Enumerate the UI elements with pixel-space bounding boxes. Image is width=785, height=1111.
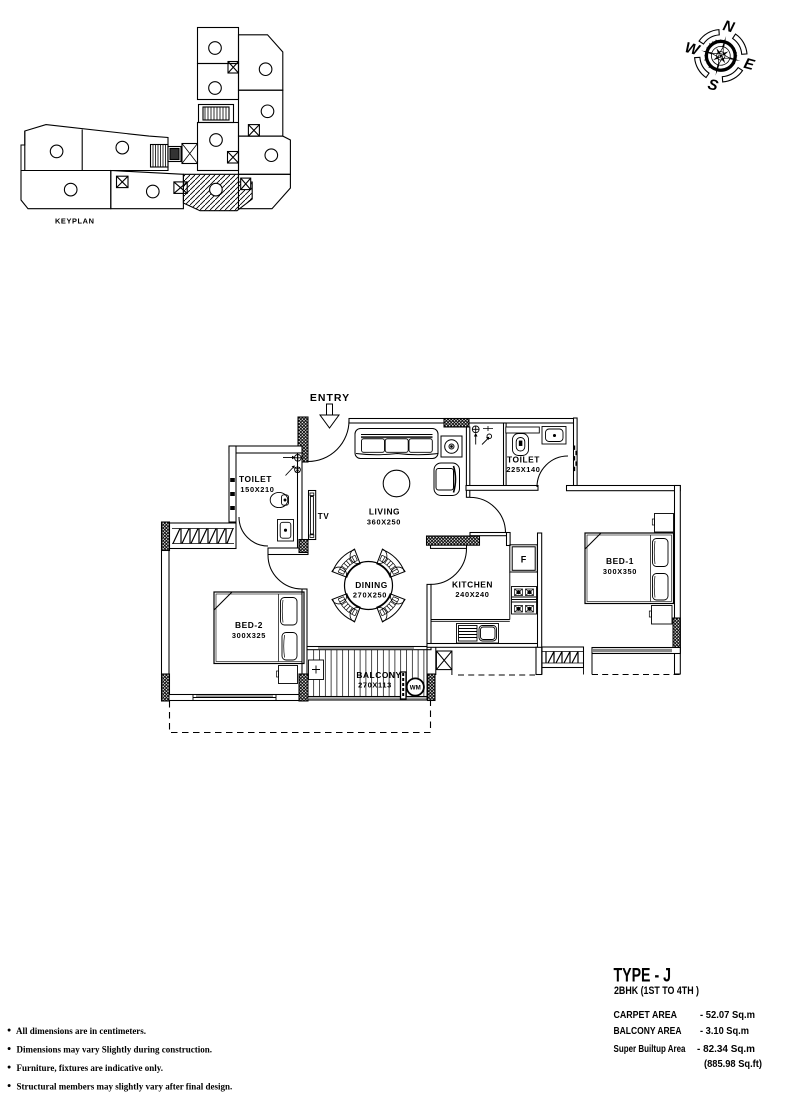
svg-text:225X140: 225X140 [506,465,540,474]
svg-text:TV: TV [318,512,330,521]
svg-text:KEYPLAN: KEYPLAN [55,217,95,226]
svg-text:LIVING: LIVING [369,507,400,517]
svg-text:TOILET: TOILET [239,474,272,484]
svg-text:300X350: 300X350 [603,567,637,576]
svg-text:TYPE - J: TYPE - J [614,965,672,987]
svg-text:- 82.34 Sq.m: - 82.34 Sq.m [697,1044,755,1055]
svg-text:(885.98 Sq.ft): (885.98 Sq.ft) [704,1059,762,1070]
svg-text:BALCONY: BALCONY [356,670,401,680]
svg-text:● All dimensions are in centim: ● All dimensions are in centimeters. [7,1026,146,1036]
svg-text:150X210: 150X210 [240,485,274,494]
svg-text:ENTRY: ENTRY [310,392,350,404]
svg-text:BED-1: BED-1 [606,556,634,566]
svg-text:BED-2: BED-2 [235,620,263,630]
svg-text:CARPET AREA: CARPET AREA [614,1010,678,1021]
svg-text:TOILET: TOILET [507,455,540,465]
svg-text:2BHK (1ST TO 4TH ): 2BHK (1ST TO 4TH ) [614,985,699,997]
svg-text:WM: WM [410,684,421,691]
svg-text:DINING: DINING [355,580,388,590]
svg-text:F: F [521,555,527,565]
svg-text:Super Builtup Area: Super Builtup Area [614,1044,686,1055]
svg-text:270X113: 270X113 [358,681,392,690]
svg-text:● Structural members may sligh: ● Structural members may slightly vary a… [7,1082,232,1092]
svg-text:● Dimensions may vary Slightly: ● Dimensions may vary Slightly during co… [7,1045,212,1055]
svg-text:270X250: 270X250 [353,591,387,600]
svg-text:360X250: 360X250 [367,517,401,526]
svg-text:KITCHEN: KITCHEN [452,580,493,590]
svg-text:240X240: 240X240 [455,590,489,599]
svg-text:300X325: 300X325 [232,631,266,640]
svg-text:BALCONY AREA: BALCONY AREA [614,1026,682,1037]
svg-text:● Furniture, fixtures are ind: ● Furniture, fixtures are indicative onl… [7,1063,163,1073]
svg-text:- 3.10 Sq.m: - 3.10 Sq.m [700,1026,749,1037]
svg-text:- 52.07 Sq.m: - 52.07 Sq.m [700,1010,755,1021]
